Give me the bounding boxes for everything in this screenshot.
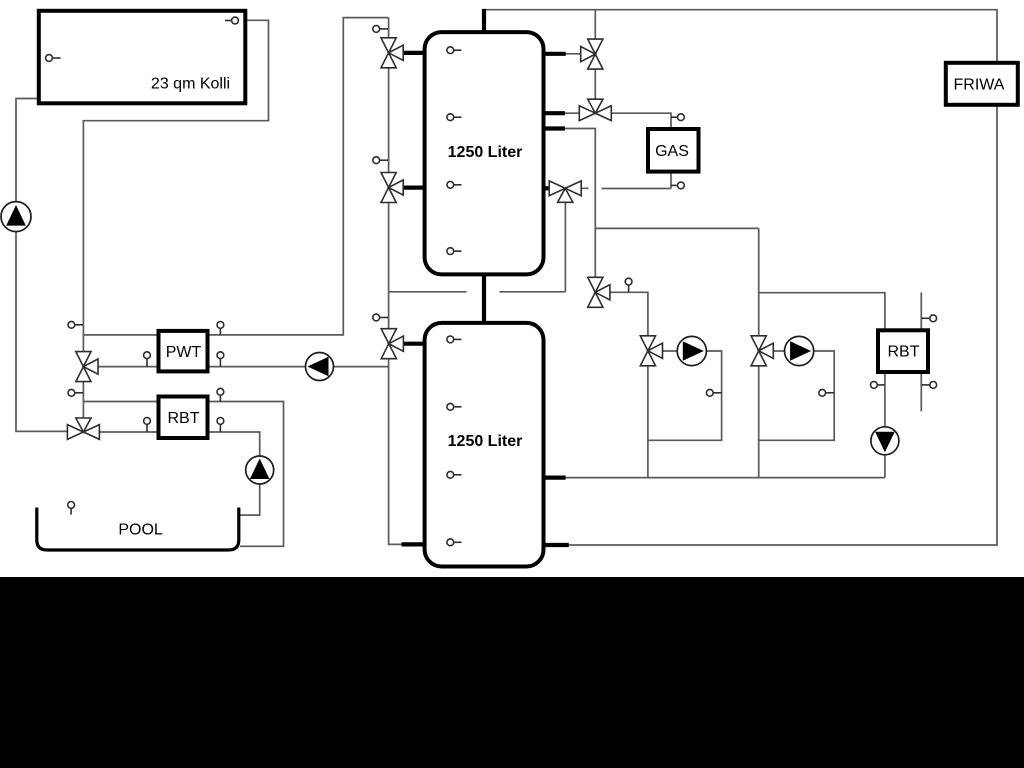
svg-text:1250 Liter: 1250 Liter [448,144,523,161]
svg-text:GAS: GAS [655,143,689,160]
svg-text:RBT: RBT [168,410,200,427]
svg-text:POOL: POOL [118,522,163,539]
svg-text:23 qm Kolli: 23 qm Kolli [151,76,230,93]
svg-text:1250 Liter: 1250 Liter [448,433,523,450]
svg-text:RBT: RBT [888,344,920,361]
svg-text:PWT: PWT [166,344,202,361]
svg-text:FRIWA: FRIWA [954,76,1005,93]
